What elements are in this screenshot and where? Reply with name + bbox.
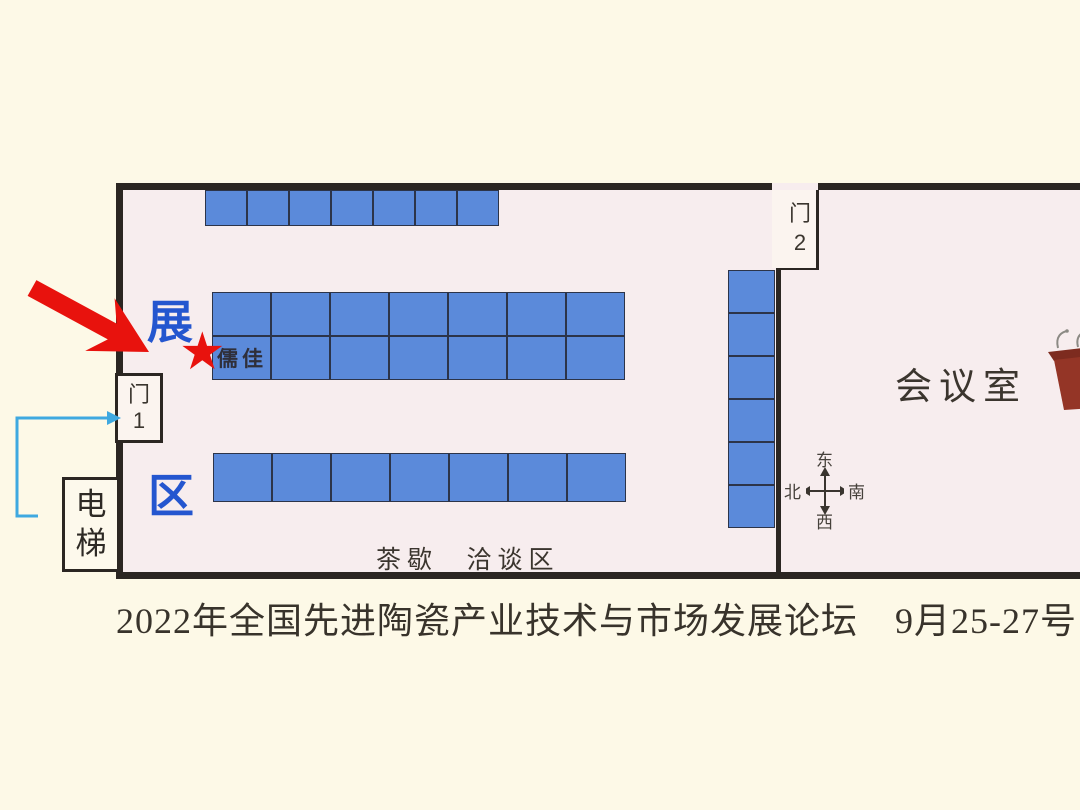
door-1-num: 1 [133, 408, 145, 434]
booth-cell-top-row-0-2 [289, 190, 331, 226]
booth-cell-middle-block-1-2 [330, 336, 389, 380]
podium-icon [1042, 328, 1080, 416]
screenshot-root: { "caption": { "text": "2022年全国先进陶瓷产业技术与… [0, 0, 1080, 810]
booth-cell-top-row-0-6 [457, 190, 499, 226]
highlighted-booth-label: 儒佳 [217, 343, 267, 373]
booth-cell-top-row-0-0 [205, 190, 247, 226]
booth-cell-bottom-row-0-0 [213, 453, 272, 502]
booth-cell-middle-block-0-4 [448, 292, 507, 336]
booth-cell-middle-block-0-2 [330, 292, 389, 336]
booth-cell-side-column-1-0 [728, 313, 775, 356]
door-1-char: 门 [128, 382, 150, 408]
compass: 东 南 西 北 [780, 446, 870, 536]
tea-area: 茶歇 洽谈区 [376, 540, 559, 576]
compass-top-label: 东 [816, 446, 833, 471]
booth-cell-middle-block-0-1 [271, 292, 330, 336]
booth-cell-bottom-row-0-6 [567, 453, 626, 502]
booth-cell-bottom-row-0-3 [390, 453, 449, 502]
booth-cell-middle-block-1-3 [389, 336, 448, 380]
booth-cell-bottom-row-0-1 [272, 453, 331, 502]
booth-cell-bottom-row-0-2 [331, 453, 390, 502]
booth-cell-side-column-2-0 [728, 356, 775, 399]
booth-cell-top-row-0-3 [331, 190, 373, 226]
booth-cell-side-column-0-0 [728, 270, 775, 313]
booth-cell-side-column-3-0 [728, 399, 775, 442]
booth-cell-middle-block-1-4 [448, 336, 507, 380]
booth-cell-middle-block-1-5 [507, 336, 566, 380]
door-2-num: 2 [794, 229, 806, 258]
zone-label-bottom: 区 [148, 460, 194, 526]
compass-left-label: 北 [784, 478, 801, 503]
booth-cell-top-row-0-5 [415, 190, 457, 226]
booth-cell-bottom-row-0-5 [508, 453, 567, 502]
booth-cell-bottom-row-0-4 [449, 453, 508, 502]
door-2-char: 门 [789, 200, 811, 229]
booth-cell-middle-block-1-1 [271, 336, 330, 380]
tea-break-label: 茶歇 [376, 547, 438, 574]
compass-right-label: 南 [848, 478, 865, 503]
door-2: 门 2 [783, 192, 817, 266]
meeting-room-label: 会议室 [895, 356, 1027, 410]
booth-cell-top-row-0-4 [373, 190, 415, 226]
compass-bottom-label: 西 [816, 508, 833, 533]
booth-cell-middle-block-0-3 [389, 292, 448, 336]
route-arrow-icon [8, 404, 130, 529]
booth-cell-side-column-5-0 [728, 485, 775, 528]
booth-cell-top-row-0-1 [247, 190, 289, 226]
booth-cell-middle-block-0-5 [507, 292, 566, 336]
booth-cell-middle-block-0-6 [566, 292, 625, 336]
booth-cell-middle-block-1-6 [566, 336, 625, 380]
red-pointer-arrow-icon [24, 280, 164, 370]
negotiation-area-label: 洽谈区 [466, 547, 559, 574]
booth-cell-side-column-4-0 [728, 442, 775, 485]
